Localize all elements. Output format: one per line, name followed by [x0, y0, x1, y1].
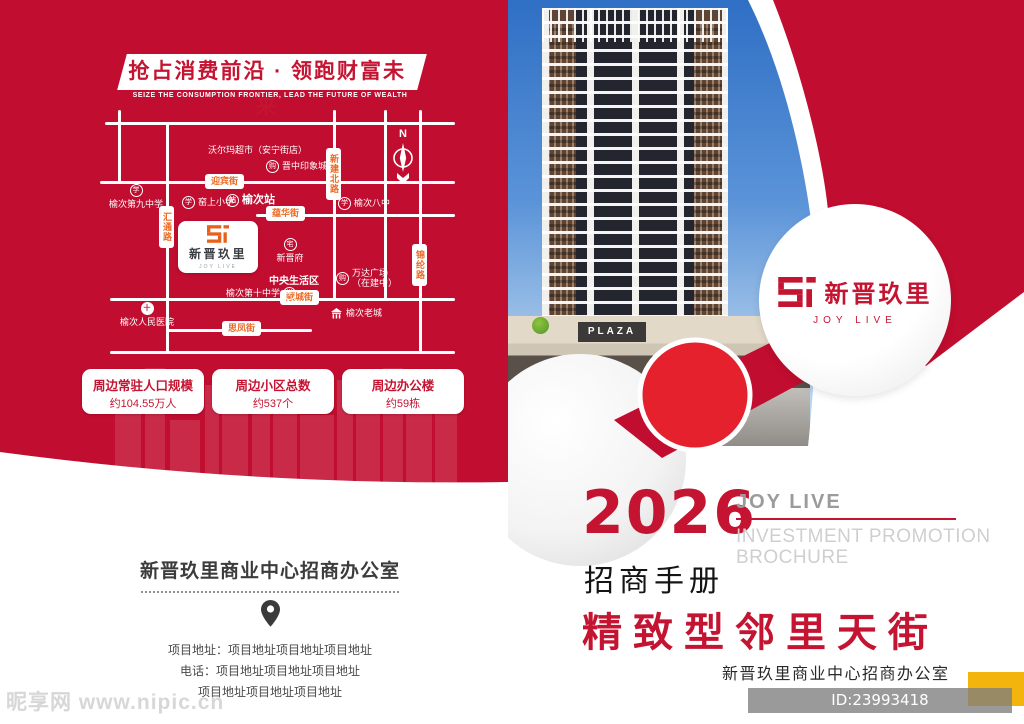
brand-logo-circle: 新晋玖里 JOY LIVE — [759, 204, 951, 396]
map-poi-old-town: 榆次老城 — [330, 308, 382, 319]
street-label: 蕴华街 — [266, 206, 305, 221]
street-label: 新建北路 — [326, 148, 341, 200]
office-title: 新晋玖里商业中心招商办公室 — [95, 556, 445, 583]
map-poi-wanda-plaza: 购 万达广场 （在建中） — [336, 268, 397, 289]
shopping-icon: 购 — [266, 160, 279, 173]
map-road — [105, 122, 455, 125]
map-poi-hospital: 十 榆次人民医院 — [118, 302, 176, 327]
location-pin-icon — [95, 600, 445, 632]
site-watermark: 昵享网 www.nipic.cn — [6, 686, 224, 716]
contact-block: 新晋玖里商业中心招商办公室 项目地址：项目地址项目地址项目地址 电话：项目地址项… — [95, 556, 445, 703]
school-icon: 学 — [182, 196, 195, 209]
map-poi-school-10: 榆次第十中学 学 — [226, 287, 296, 300]
map-poi-central-living-area: 中央生活区 — [264, 276, 324, 288]
map-road — [118, 110, 121, 182]
shopping-icon: 购 — [336, 272, 349, 285]
main-title: 精致型邻里天街 — [582, 600, 939, 658]
map-road — [419, 110, 422, 352]
project-brand-tagline: JOY LIVE — [199, 264, 237, 270]
phone-line: 电话：项目地址项目地址项目地址 — [95, 661, 445, 682]
project-brand-name: 新晋玖里 — [189, 245, 247, 262]
map-poi-xinjinfu: 宅 新晋府 — [272, 238, 308, 263]
brochure-en-line2: BROCHURE — [736, 547, 849, 569]
street-label: 迎宾街 — [205, 174, 244, 189]
map-poi-yuci-station: 站 榆次站 — [226, 194, 275, 207]
location-map: 迎宾街 蕴华街 顺城街 思凤街 汇通路 新建北路 锦纶路 沃尔玛超市（安宁街店）… — [0, 0, 508, 420]
si-logo-icon — [207, 225, 229, 243]
map-poi-school-8: 学 榆次八中 — [338, 197, 390, 210]
left-page: 抢占消费前沿 · 领跑财富未来 SEIZE THE CONSUMPTION FR… — [0, 0, 508, 724]
map-poi-school-9: 学 榆次第九中学 — [110, 184, 162, 209]
compass-north-icon: N — [388, 126, 418, 186]
stat-communities: 周边小区总数 约537个 — [212, 369, 334, 414]
id-watermark: ID:23993418 NO:20260326222023394121 — [748, 688, 1012, 713]
year-label: 2026 — [582, 478, 757, 548]
metro-station-icon: 站 — [226, 194, 239, 207]
svg-text:N: N — [399, 128, 407, 140]
red-circle-decor — [640, 340, 750, 450]
si-logo-icon — [778, 277, 816, 307]
brand-name-en: JOY LIVE — [736, 491, 842, 514]
stat-office-buildings: 周边办公楼 约59栋 — [342, 369, 464, 414]
temple-icon — [330, 308, 343, 319]
brochure-title-cn: 招商手册 — [584, 556, 724, 600]
school-icon: 学 — [130, 184, 143, 197]
brand-name: 新晋玖里 — [825, 274, 933, 309]
street-label: 汇通路 — [159, 206, 174, 248]
red-divider — [736, 518, 956, 520]
street-label: 锦纶路 — [412, 244, 427, 286]
dotted-divider — [141, 591, 399, 593]
address-line: 项目地址：项目地址项目地址项目地址 — [95, 640, 445, 661]
map-road — [110, 351, 455, 354]
brochure-spread: 抢占消费前沿 · 领跑财富未来 SEIZE THE CONSUMPTION FR… — [0, 0, 1024, 724]
street-label: 思凤街 — [222, 321, 261, 336]
school-icon: 学 — [338, 197, 351, 210]
hospital-icon: 十 — [141, 302, 154, 315]
project-logo-card: 新晋玖里 JOY LIVE — [178, 221, 258, 273]
office-name: 新晋玖里商业中心招商办公室 — [722, 660, 950, 684]
school-icon: 学 — [283, 287, 296, 300]
brand-tagline: JOY LIVE — [813, 315, 897, 326]
stat-population: 周边常驻人口规模 约104.55万人 — [82, 369, 204, 414]
residence-icon: 宅 — [284, 238, 297, 251]
map-poi-walmart: 沃尔玛超市（安宁街店） — [185, 145, 330, 155]
map-poi-yinxiangcheng: 购 晋中印象城 — [266, 160, 327, 173]
brochure-en-line1: INVESTMENT PROMOTION — [736, 526, 991, 548]
